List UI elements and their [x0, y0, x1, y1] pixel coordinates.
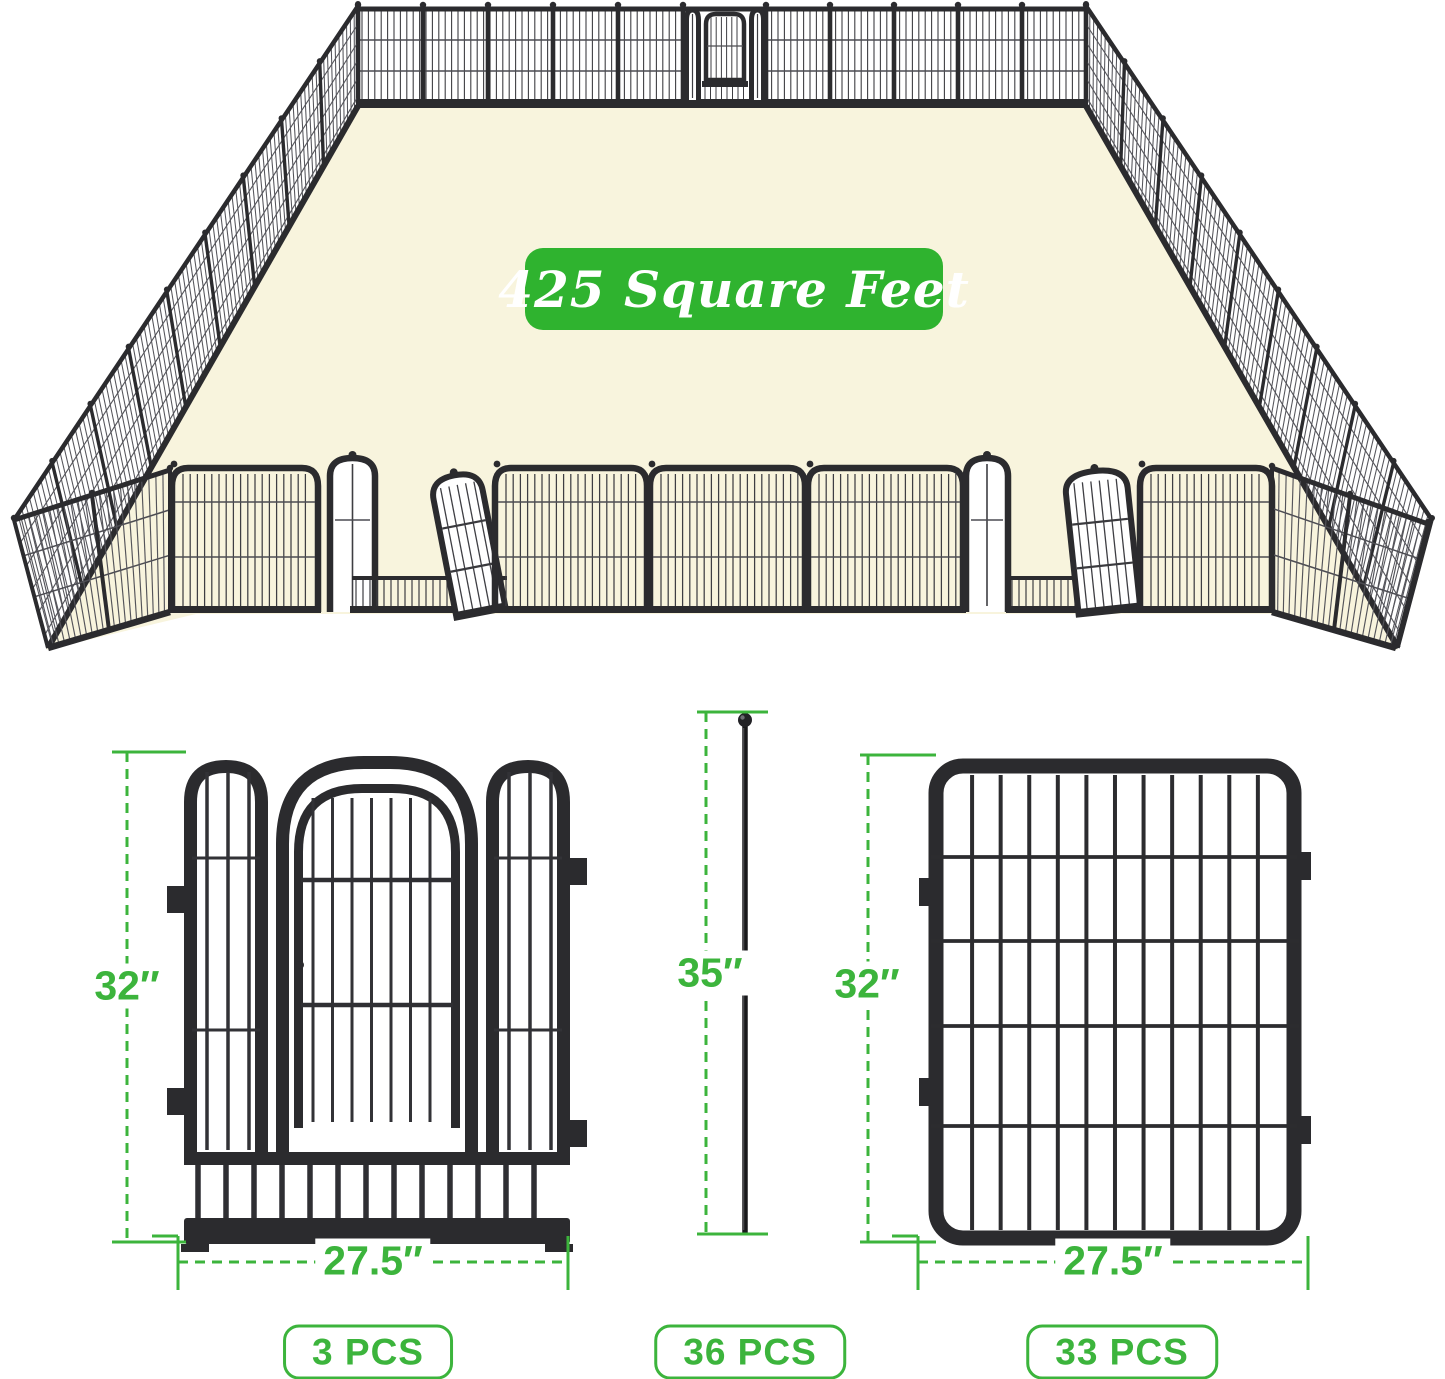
fence-panel-width-label: 27.5″ — [1055, 1239, 1170, 1284]
area-badge-label: 425 Square Feet — [498, 260, 970, 319]
playpen-product-infographic: 425 Square Feet 32″ 27.5″ 35″ 32″ 27.5″ … — [0, 0, 1445, 1379]
gate-panel-height-label: 32″ — [86, 964, 167, 1009]
gate-panel-count-badge: 3 PCS — [283, 1325, 453, 1379]
gate-panel-width-label: 27.5″ — [315, 1239, 430, 1284]
back-fence-wall — [355, 2, 1089, 108]
stake-count-badge: 36 PCS — [654, 1325, 846, 1379]
playpen-illustration — [0, 0, 1445, 1379]
open-gate-door — [1062, 461, 1141, 615]
fence-panel-figure — [919, 766, 1311, 1238]
fence-panel-height-label: 32″ — [826, 962, 907, 1007]
gate-panel-figure — [167, 763, 587, 1253]
area-badge: 425 Square Feet — [525, 248, 943, 330]
fence-panel-count-badge: 33 PCS — [1026, 1325, 1218, 1379]
stake-height-label: 35″ — [669, 951, 750, 996]
